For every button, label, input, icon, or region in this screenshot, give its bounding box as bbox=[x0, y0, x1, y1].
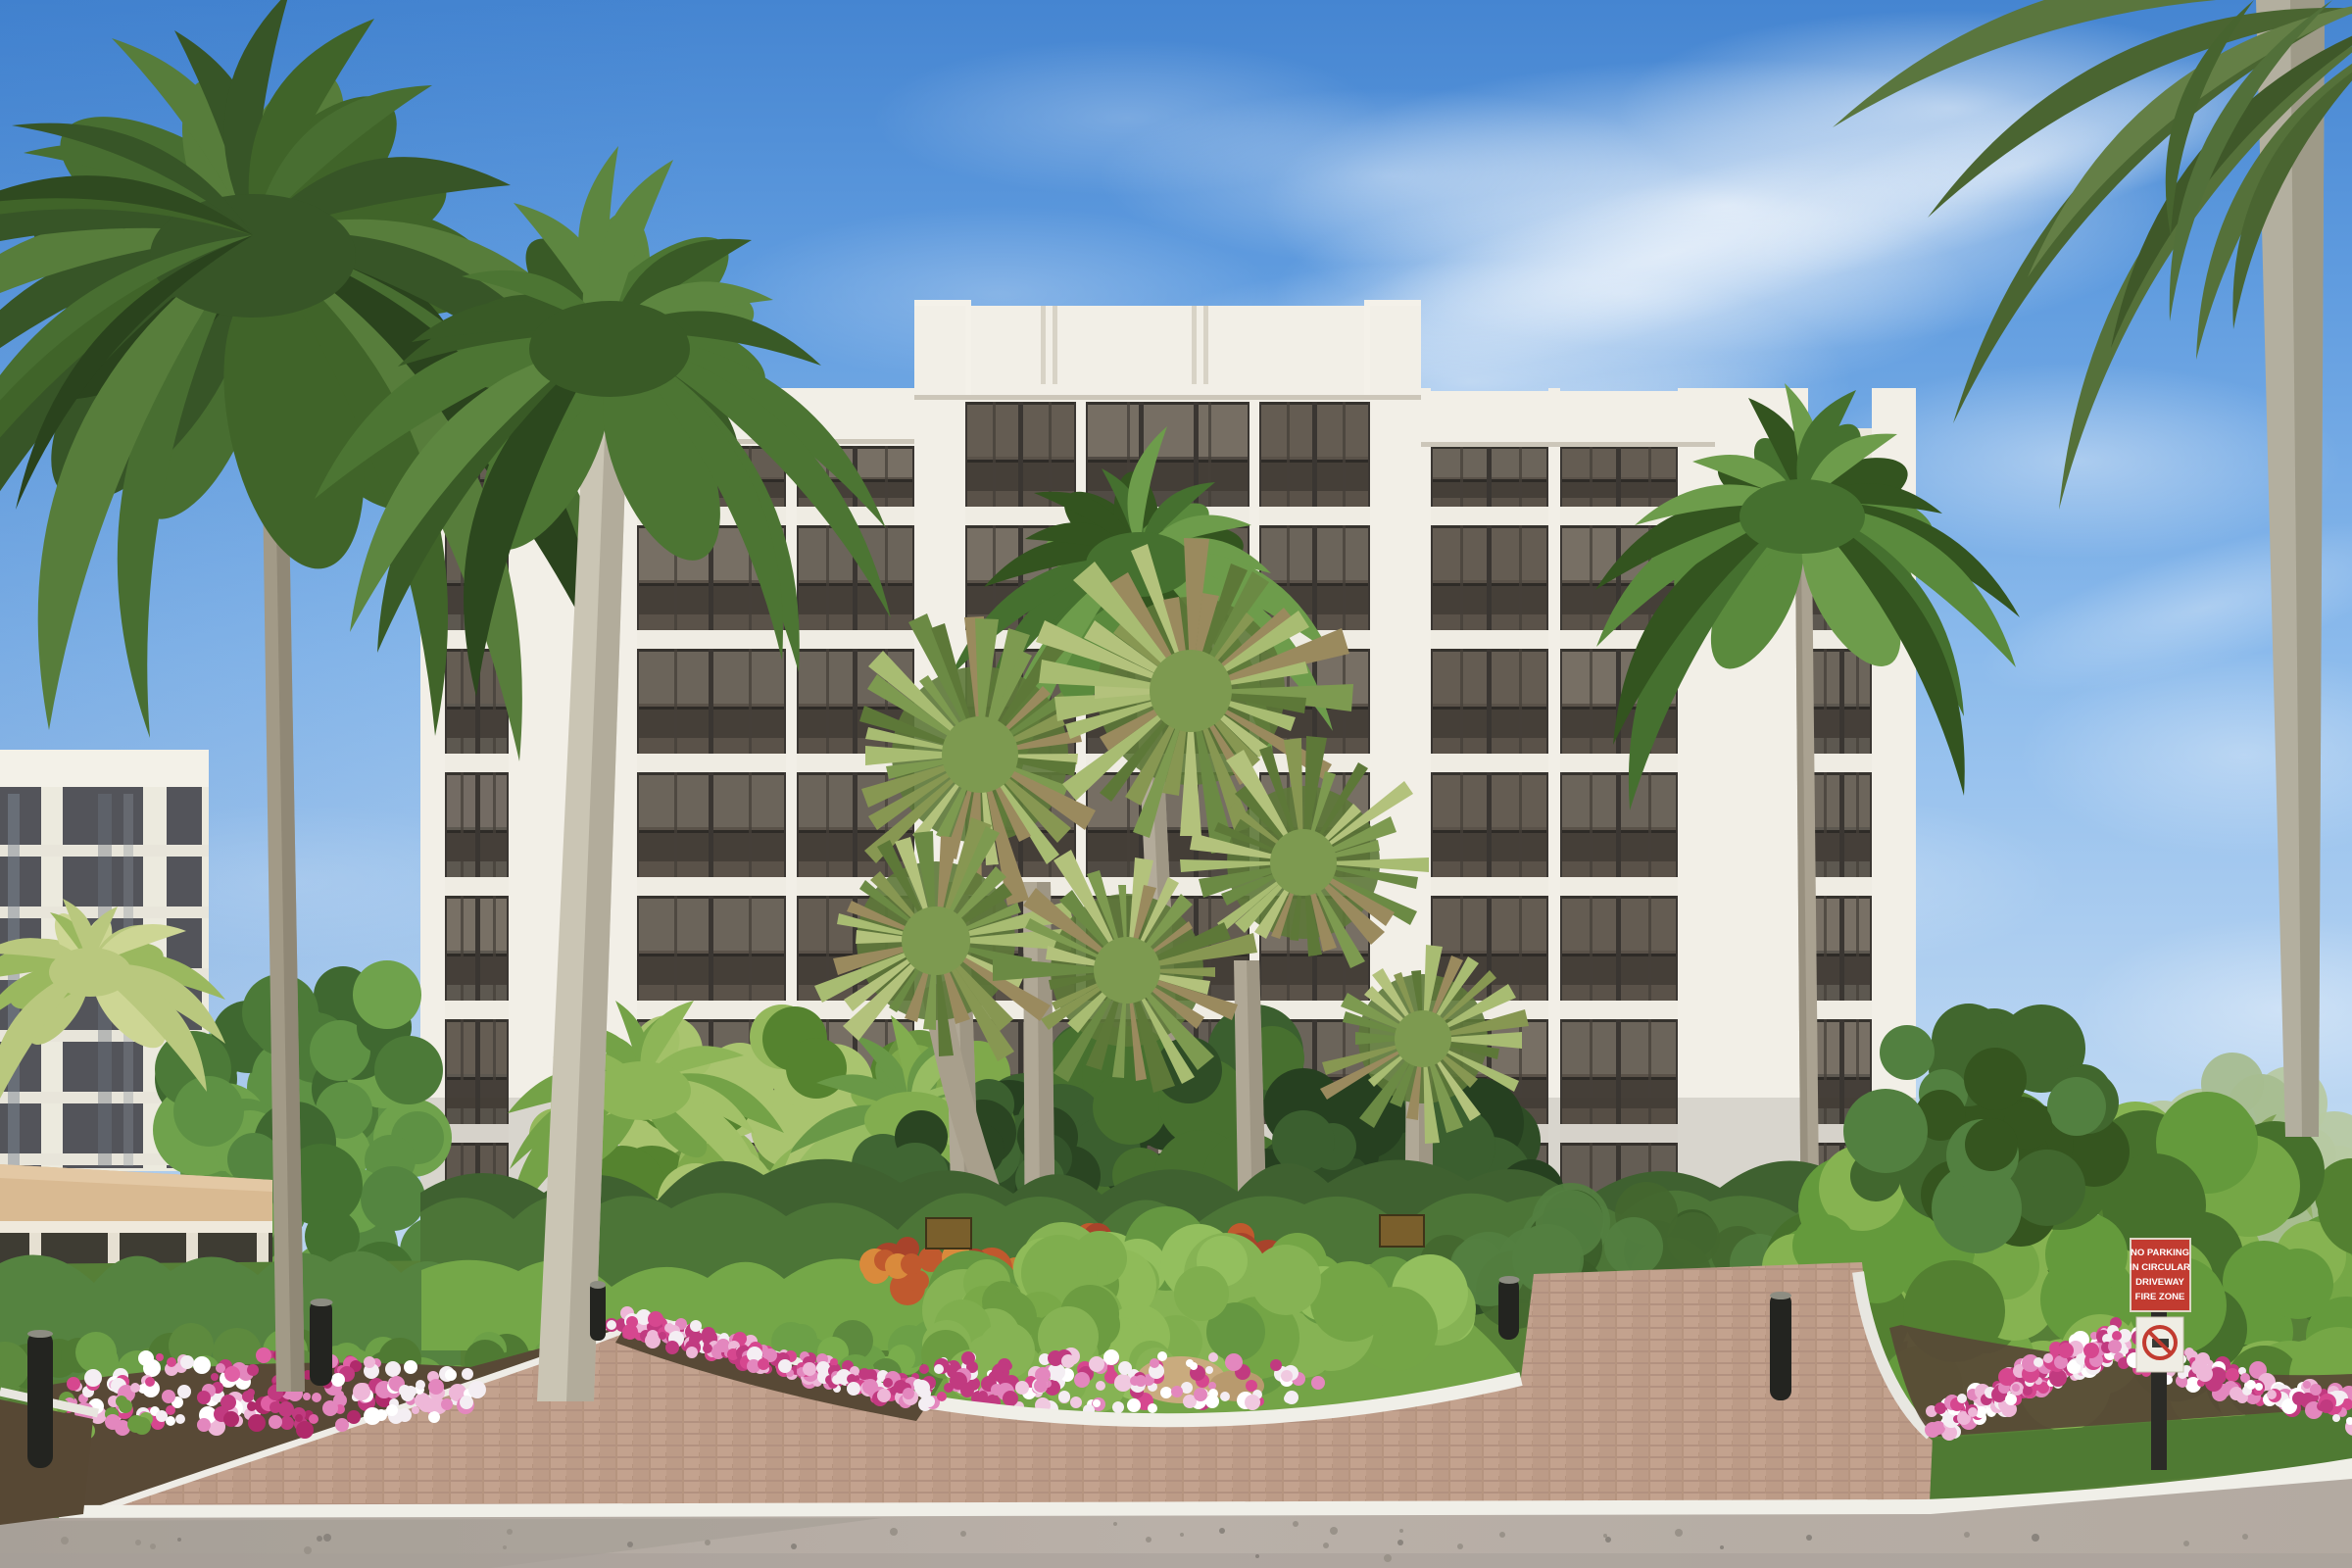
svg-text:FIRE ZONE: FIRE ZONE bbox=[2135, 1292, 2185, 1302]
svg-text:IN CIRCULAR: IN CIRCULAR bbox=[2130, 1262, 2190, 1273]
svg-text:DRIVEWAY: DRIVEWAY bbox=[2135, 1277, 2184, 1288]
svg-text:NO PARKING: NO PARKING bbox=[2131, 1248, 2189, 1258]
